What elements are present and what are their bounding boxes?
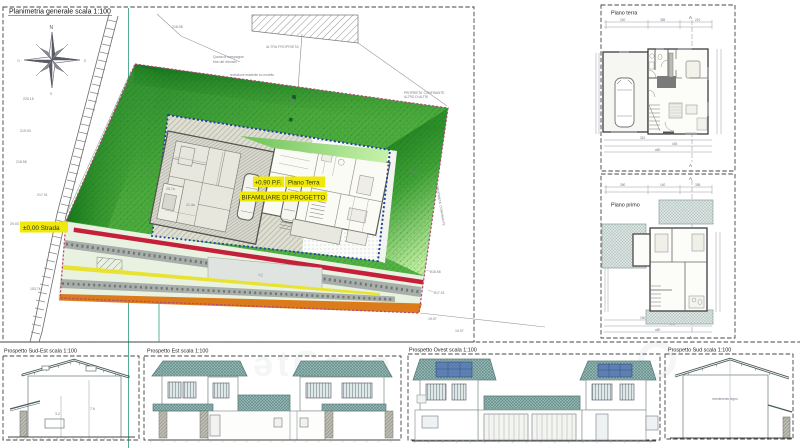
svg-text:recinzione esistente su murett: recinzione esistente su muretto xyxy=(230,73,274,77)
svg-text:Quota di campagna: Quota di campagna xyxy=(213,55,244,59)
svg-text:29.03: 29.03 xyxy=(10,222,19,226)
svg-text:Piano terra: Piano terra xyxy=(611,11,637,17)
svg-text:219.03: 219.03 xyxy=(20,129,31,133)
svg-text:ALTRO DI ALTRI: ALTRO DI ALTRI xyxy=(404,95,428,99)
svg-text:153,7k: 153,7k xyxy=(30,287,41,291)
svg-text:3.2: 3.2 xyxy=(55,412,60,416)
svg-text:Prospetto Est scala 1:100: Prospetto Est scala 1:100 xyxy=(147,349,208,355)
svg-text:Prospetto Sud-Est scala 1:100: Prospetto Sud-Est scala 1:100 xyxy=(4,349,77,355)
svg-text:210: 210 xyxy=(695,18,701,22)
svg-text:A: A xyxy=(689,15,692,20)
svg-text:N: N xyxy=(50,25,54,31)
svg-text:358: 358 xyxy=(695,183,701,187)
svg-text:19.07: 19.07 xyxy=(428,317,437,321)
svg-text:390: 390 xyxy=(620,183,626,187)
svg-text:Prospetto Ovest scala 1:100: Prospetto Ovest scala 1:100 xyxy=(409,348,477,354)
svg-text:+0,90 P.F.: +0,90 P.F. xyxy=(255,180,283,187)
svg-text:a50: a50 xyxy=(655,148,661,152)
svg-text:220.15: 220.15 xyxy=(23,97,34,101)
svg-text:193,05: 193,05 xyxy=(142,169,153,173)
svg-text:A: A xyxy=(689,335,692,340)
svg-text:±0,00 Strada: ±0,00 Strada xyxy=(23,225,60,232)
svg-text:7.6: 7.6 xyxy=(90,407,95,411)
svg-text:A: A xyxy=(689,176,692,181)
svg-text:140: 140 xyxy=(660,183,666,187)
svg-text:217.91: 217.91 xyxy=(37,193,48,197)
svg-text:Prospetto Sud scala 1:100: Prospetto Sud scala 1:100 xyxy=(668,348,731,354)
svg-text:Planimetria generale scala 1:1: Planimetria generale scala 1:100 xyxy=(9,9,111,16)
svg-text:445: 445 xyxy=(672,142,678,146)
svg-text:21,4a: 21,4a xyxy=(186,203,195,207)
svg-text:310: 310 xyxy=(640,136,646,140)
svg-text:rivestimento legno: rivestimento legno xyxy=(712,397,738,401)
svg-text:19.07: 19.07 xyxy=(455,329,464,333)
svg-text:fine del rilevato: fine del rilevato xyxy=(213,60,237,64)
svg-text:ALTRA PROPRIETA': ALTRA PROPRIETA' xyxy=(266,45,300,49)
svg-text:Piano Terra: Piano Terra xyxy=(288,180,320,187)
svg-text:a50: a50 xyxy=(655,328,661,332)
svg-text:218.08: 218.08 xyxy=(172,25,183,29)
svg-text:Piano primo: Piano primo xyxy=(611,203,640,209)
svg-text:385: 385 xyxy=(660,18,666,22)
svg-text:240: 240 xyxy=(620,18,626,22)
svg-text:A: A xyxy=(689,163,692,168)
svg-text:180: 180 xyxy=(640,316,646,320)
svg-text:BIFAMILIARE DI PROGETTO: BIFAMILIARE DI PROGETTO xyxy=(242,195,326,202)
svg-text:25,7a: 25,7a xyxy=(166,187,175,191)
svg-text:O: O xyxy=(17,59,20,63)
svg-text:218.56: 218.56 xyxy=(16,160,27,164)
